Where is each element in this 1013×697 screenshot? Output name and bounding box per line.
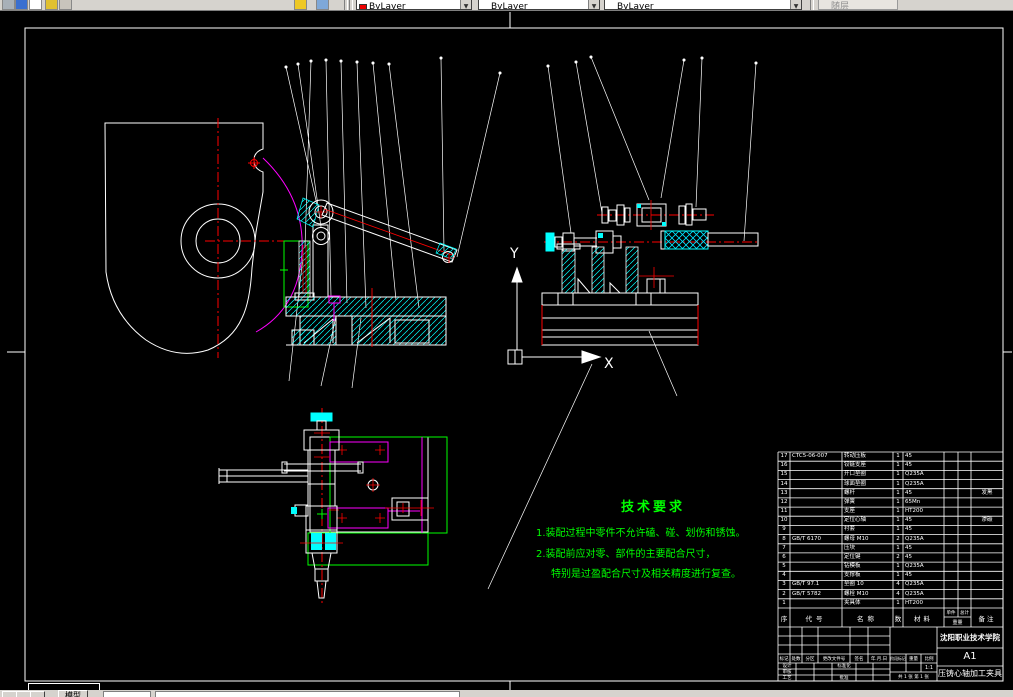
bom-cell-seq: 5 xyxy=(778,562,790,571)
bom-cell-code: GB/T 5782 xyxy=(790,590,842,599)
bom-header-material: 材料 xyxy=(903,610,944,625)
table-row: 14 球面垫圈 1 Q235A xyxy=(778,480,1003,489)
bom-cell-remark: 渗碳 xyxy=(971,516,1003,525)
bom-cell-name: 开口垫圈 xyxy=(842,470,893,479)
bom-cell-code xyxy=(790,489,842,498)
ucs-y-label: Y xyxy=(509,246,519,262)
label-scale: 比例 xyxy=(921,654,937,663)
bom-cell-material: Q235A xyxy=(903,480,944,489)
bom-cell-weight xyxy=(944,452,971,461)
plot-icon[interactable] xyxy=(45,0,58,10)
bom-cell-code xyxy=(790,498,842,507)
label-process: 工艺 xyxy=(778,675,796,681)
tech-requirements-title: 技术要求 xyxy=(588,496,718,515)
scale-value: 1:1 xyxy=(921,663,937,672)
bom-cell-name: 球面垫圈 xyxy=(842,480,893,489)
bom-cell-name: 螺母 M10 xyxy=(842,535,893,544)
linetype-control-combo[interactable]: ByLayer ▼ xyxy=(478,0,600,10)
bom-cell-qty: 1 xyxy=(893,461,903,470)
bom-header-seq: 序 xyxy=(778,610,790,625)
bom-cell-seq: 10 xyxy=(778,516,790,525)
redo-icon[interactable] xyxy=(294,0,307,10)
status-bar: 模型 xyxy=(0,690,1013,697)
bom-cell-weight xyxy=(944,525,971,534)
bom-cell-material: Q235A xyxy=(903,535,944,544)
bom-cell-seq: 15 xyxy=(778,470,790,479)
chevron-down-icon[interactable]: ▼ xyxy=(460,0,471,10)
chevron-down-icon[interactable]: ▼ xyxy=(588,0,599,10)
bom-cell-remark xyxy=(971,580,1003,589)
top-toolbar: ByLayer ▼ ByLayer ▼ ByLayer ▼ 随层 xyxy=(0,0,1013,11)
bom-cell-code xyxy=(790,562,842,571)
bom-cell-remark xyxy=(971,461,1003,470)
bom-cell-name: 钻模板 xyxy=(842,562,893,571)
table-row: 17 CTC5-06-007 转动压板 1 45 xyxy=(778,452,1003,461)
bom-cell-material: HT200 xyxy=(903,599,944,608)
autocad-window: Y X xyxy=(0,0,1013,697)
table-row: 8 GB/T 6170 螺母 M10 2 Q235A xyxy=(778,535,1003,544)
bom-cell-material: HT200 xyxy=(903,507,944,516)
bom-cell-code xyxy=(790,507,842,516)
tech-requirements-line: 特别是过盈配合尺寸及相关精度进行复查。 xyxy=(551,565,741,580)
toolbar-icon-2[interactable] xyxy=(59,0,72,10)
bom-header-code: 代号 xyxy=(790,610,842,625)
open-icon[interactable] xyxy=(15,0,28,10)
bom-cell-material: Q235A xyxy=(903,470,944,479)
bom-cell-remark: 发黑 xyxy=(971,489,1003,498)
bom-cell-qty: 2 xyxy=(893,553,903,562)
bom-cell-material: 45 xyxy=(903,516,944,525)
label-approve: 批准 xyxy=(832,675,856,681)
table-row: 1 夹具体 1 HT200 xyxy=(778,599,1003,608)
bom-cell-code xyxy=(790,470,842,479)
bom-cell-weight xyxy=(944,489,971,498)
table-row: 6 定位键 2 45 xyxy=(778,553,1003,562)
bom-cell-name: 螺栓 M10 xyxy=(842,590,893,599)
bom-cell-qty: 1 xyxy=(893,516,903,525)
new-file-icon[interactable] xyxy=(29,0,42,10)
toolbar-icon-1[interactable] xyxy=(2,0,15,10)
bom-cell-material: 65Mn xyxy=(903,498,944,507)
bom-cell-material: 45 xyxy=(903,525,944,534)
lineweight-control-combo[interactable]: ByLayer ▼ xyxy=(604,0,802,10)
bom-cell-weight xyxy=(944,470,971,479)
table-row: 7 压块 1 45 xyxy=(778,544,1003,553)
tab-scroll-button[interactable] xyxy=(2,691,17,697)
bom-cell-name: 螺杆 xyxy=(842,489,893,498)
bom-cell-weight xyxy=(944,544,971,553)
bom-cell-qty: 4 xyxy=(893,580,903,589)
bom-cell-remark xyxy=(971,525,1003,534)
bom-cell-qty: 1 xyxy=(893,498,903,507)
bom-cell-seq: 3 xyxy=(778,580,790,589)
bom-cell-qty: 1 xyxy=(893,470,903,479)
table-row: 13 螺杆 1 45 发黑 xyxy=(778,489,1003,498)
bom-cell-seq: 2 xyxy=(778,590,790,599)
bom-header-total: 总计 xyxy=(958,608,971,617)
bom-header-remark: 备注 xyxy=(971,610,1003,625)
bom-cell-material: 45 xyxy=(903,461,944,470)
bom-cell-weight xyxy=(944,498,971,507)
table-row: 11 支座 1 HT200 xyxy=(778,507,1003,516)
bom-cell-code: GB/T 6170 xyxy=(790,535,842,544)
bom-cell-qty: 1 xyxy=(893,525,903,534)
bom-cell-code: GB/T 97.1 xyxy=(790,580,842,589)
bom-cell-remark xyxy=(971,498,1003,507)
tab-scroll-button[interactable] xyxy=(30,691,45,697)
label-mark: 标记 xyxy=(778,654,790,663)
table-row: 4 支撑板 1 45 xyxy=(778,571,1003,580)
bom-cell-remark xyxy=(971,544,1003,553)
layout-tab-area[interactable] xyxy=(103,691,151,697)
bom-cell-seq: 8 xyxy=(778,535,790,544)
bom-cell-remark xyxy=(971,571,1003,580)
bom-cell-weight xyxy=(944,590,971,599)
bom-cell-code xyxy=(790,544,842,553)
bom-cell-seq: 17 xyxy=(778,452,790,461)
tech-requirements-line: 2.装配前应对零、部件的主要配合尺寸， xyxy=(536,545,716,560)
drawing-title: 压铸心轴加工夹具 xyxy=(937,667,1003,680)
table-row: 9 衬套 1 45 xyxy=(778,525,1003,534)
bom-cell-qty: 1 xyxy=(893,489,903,498)
label-signature: 签名 xyxy=(850,654,868,663)
bom-cell-code xyxy=(790,525,842,534)
bom-cell-seq: 14 xyxy=(778,480,790,489)
bom-cell-qty: 1 xyxy=(893,599,903,608)
bom-cell-weight xyxy=(944,535,971,544)
bom-cell-code xyxy=(790,599,842,608)
bom-cell-weight xyxy=(944,507,971,516)
bom-cell-name: 定位键 xyxy=(842,553,893,562)
bom-cell-remark xyxy=(971,562,1003,571)
table-row: 3 GB/T 97.1 垫圈 10 4 Q235A xyxy=(778,580,1003,589)
bom-cell-material: 45 xyxy=(903,452,944,461)
3d-view-icon[interactable] xyxy=(316,0,329,10)
plotstyle-control-combo[interactable]: 随层 xyxy=(818,0,898,10)
table-row: 2 GB/T 5782 螺栓 M10 4 Q235A xyxy=(778,590,1003,599)
bom-cell-material: Q235A xyxy=(903,590,944,599)
bom-cell-qty: 1 xyxy=(893,544,903,553)
bom-cell-weight xyxy=(944,599,971,608)
bom-cell-name: 转动压板 xyxy=(842,452,893,461)
bom-cell-qty: 4 xyxy=(893,590,903,599)
toolbar-separator xyxy=(344,0,348,10)
table-row: 12 弹簧 1 65Mn xyxy=(778,498,1003,507)
bom-cell-seq: 12 xyxy=(778,498,790,507)
toolbar-separator xyxy=(810,0,814,10)
bom-cell-name: 压块 xyxy=(842,544,893,553)
bom-cell-weight xyxy=(944,480,971,489)
bom-cell-material: Q235A xyxy=(903,562,944,571)
color-chip xyxy=(359,4,367,10)
bom-cell-seq: 1 xyxy=(778,599,790,608)
bom-cell-material: 45 xyxy=(903,544,944,553)
bom-cell-seq: 11 xyxy=(778,507,790,516)
bom-cell-weight xyxy=(944,562,971,571)
table-row: 10 定位心轴 1 45 渗碳 xyxy=(778,516,1003,525)
color-combo-value: ByLayer xyxy=(369,2,406,10)
bom-cell-name: 支撑板 xyxy=(842,571,893,580)
bom-header-name: 名称 xyxy=(842,610,893,625)
bom-cell-name: 支座 xyxy=(842,507,893,516)
bom-cell-material: 45 xyxy=(903,489,944,498)
toolbar-separator xyxy=(349,0,353,10)
bom-cell-name: 定位心轴 xyxy=(842,516,893,525)
bom-cell-qty: 1 xyxy=(893,452,903,461)
bom-cell-weight xyxy=(944,553,971,562)
bom-cell-code xyxy=(790,480,842,489)
label-weight: 重量 xyxy=(906,654,921,663)
lineweight-combo-value: ByLayer xyxy=(617,2,654,10)
bom-cell-remark xyxy=(971,507,1003,516)
bom-cell-remark xyxy=(971,452,1003,461)
bom-cell-remark xyxy=(971,599,1003,608)
color-control-combo[interactable]: ByLayer ▼ xyxy=(356,0,472,10)
label-standardization: 标准化 xyxy=(832,663,856,669)
tech-requirements-line: 1.装配过程中零件不允许磕、碰、划伤和锈蚀。 xyxy=(536,524,746,539)
label-change-file: 更改文件号 xyxy=(818,654,850,663)
bom-cell-name: 铰链支座 xyxy=(842,461,893,470)
linetype-combo-value: ByLayer xyxy=(491,2,528,10)
bom-cell-seq: 9 xyxy=(778,525,790,534)
tab-model[interactable]: 模型 xyxy=(58,690,88,697)
bom-cell-code xyxy=(790,461,842,470)
bom-cell-seq: 7 xyxy=(778,544,790,553)
table-row: 15 开口垫圈 1 Q235A xyxy=(778,470,1003,479)
chevron-down-icon[interactable]: ▼ xyxy=(790,0,801,10)
bom-cell-qty: 1 xyxy=(893,507,903,516)
tab-scroll-button[interactable] xyxy=(16,691,31,697)
bom-cell-code xyxy=(790,571,842,580)
bom-cell-name: 夹具体 xyxy=(842,599,893,608)
bom-cell-weight xyxy=(944,580,971,589)
bom-cell-material: Q235A xyxy=(903,580,944,589)
bom-cell-seq: 13 xyxy=(778,489,790,498)
plotstyle-combo-value: 随层 xyxy=(831,2,849,10)
bom-cell-name: 垫圈 10 xyxy=(842,580,893,589)
label-count: 处数 xyxy=(790,654,802,663)
bom-cell-material: 45 xyxy=(903,553,944,562)
bom-header-unit: 单件 xyxy=(944,608,958,617)
bom-cell-weight xyxy=(944,516,971,525)
label-date: 年.月.日 xyxy=(868,654,890,663)
bom-cell-remark xyxy=(971,553,1003,562)
bom-table: 17 CTC5-06-007 转动压板 1 45 16 铰链支座 1 45 15… xyxy=(778,452,1003,608)
label-zone: 分区 xyxy=(802,654,818,663)
bom-cell-material: 45 xyxy=(903,571,944,580)
bom-cell-name: 弹簧 xyxy=(842,498,893,507)
bom-cell-remark xyxy=(971,470,1003,479)
bom-cell-seq: 4 xyxy=(778,571,790,580)
school-name: 沈阳职业技术学院 xyxy=(937,629,1003,646)
bom-cell-seq: 16 xyxy=(778,461,790,470)
sheet-size: A1 xyxy=(937,649,1003,664)
bom-cell-qty: 1 xyxy=(893,562,903,571)
bom-header-weight: 重量 xyxy=(944,617,971,627)
sheet-count: 共 1 张 第 1 张 xyxy=(890,672,937,681)
bom-header-qty: 数 xyxy=(893,610,903,625)
ucs-x-label: X xyxy=(604,356,614,372)
bom-cell-code: CTC5-06-007 xyxy=(790,452,842,461)
bom-cell-weight xyxy=(944,571,971,580)
table-row: 16 铰链支座 1 45 xyxy=(778,461,1003,470)
bom-cell-code xyxy=(790,553,842,562)
bom-cell-remark xyxy=(971,480,1003,489)
bom-cell-qty: 2 xyxy=(893,535,903,544)
bom-cell-seq: 6 xyxy=(778,553,790,562)
bom-cell-remark xyxy=(971,535,1003,544)
bom-cell-remark xyxy=(971,590,1003,599)
table-row: 5 钻模板 1 Q235A xyxy=(778,562,1003,571)
command-input[interactable] xyxy=(155,691,460,697)
bom-cell-code xyxy=(790,516,842,525)
bom-cell-name: 衬套 xyxy=(842,525,893,534)
label-stage-mark: 阶段标记 xyxy=(890,654,906,663)
bom-cell-weight xyxy=(944,461,971,470)
bom-cell-qty: 1 xyxy=(893,480,903,489)
bom-cell-qty: 1 xyxy=(893,571,903,580)
